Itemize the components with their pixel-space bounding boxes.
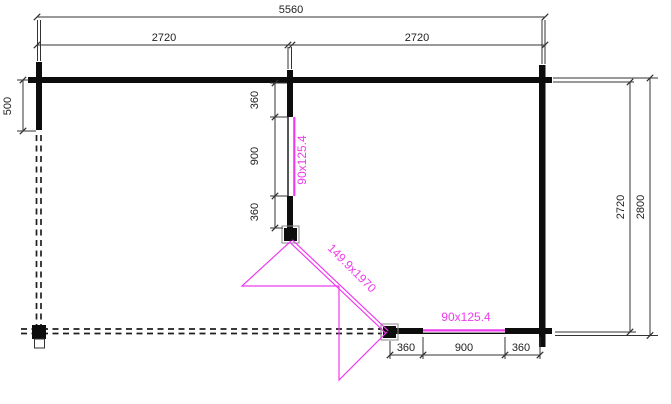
dim-label-bottom-right: 360 <box>512 342 530 354</box>
right-wall <box>539 65 546 347</box>
bottom-window-size-label: 90x125.4 <box>441 310 491 324</box>
dim-label-span-left: 2720 <box>152 32 176 44</box>
dim-label-mid-seg-bottom: 360 <box>249 203 261 221</box>
floor-plan-drawing: 149.9x1970 90x125.4 90x125.4 <box>0 0 671 404</box>
mid-window-size-label: 90x125.4 <box>295 135 309 185</box>
corner-post-footing <box>35 339 45 348</box>
dimension-ticks <box>20 14 653 358</box>
dim-label-side-return: 500 <box>2 97 14 115</box>
dim-label-right-inner: 2720 <box>615 195 627 219</box>
dim-label-bottom-left: 360 <box>397 342 415 354</box>
middle-wall-upper <box>287 70 293 117</box>
door-post-top <box>284 228 297 241</box>
door-size-label: 149.9x1970 <box>325 241 379 295</box>
terrace-dashed-edges <box>21 135 382 334</box>
walls <box>28 62 552 347</box>
floor-plan-page: 149.9x1970 90x125.4 90x125.4 <box>0 0 671 404</box>
dim-label-bottom-window: 900 <box>455 342 473 354</box>
dim-label-span-right: 2720 <box>405 32 429 44</box>
door-leaf-upper <box>242 241 339 286</box>
dim-label-mid-seg-window: 900 <box>249 147 261 165</box>
double-door-swing <box>242 240 388 380</box>
window-glazing-lines <box>294 117 505 330</box>
dim-label-total-width: 5560 <box>279 4 303 16</box>
middle-wall-lower <box>287 196 293 228</box>
extension-lines <box>17 20 658 359</box>
corner-post-block <box>32 325 46 339</box>
dimension-lines <box>23 17 650 355</box>
window-sill-lines <box>288 117 505 333</box>
dim-label-right-outer: 2800 <box>635 195 647 219</box>
corner-post <box>32 325 46 348</box>
dim-label-mid-seg-top: 360 <box>249 91 261 109</box>
bottom-wall-right-segment <box>505 328 552 334</box>
left-wall-return <box>36 62 42 130</box>
